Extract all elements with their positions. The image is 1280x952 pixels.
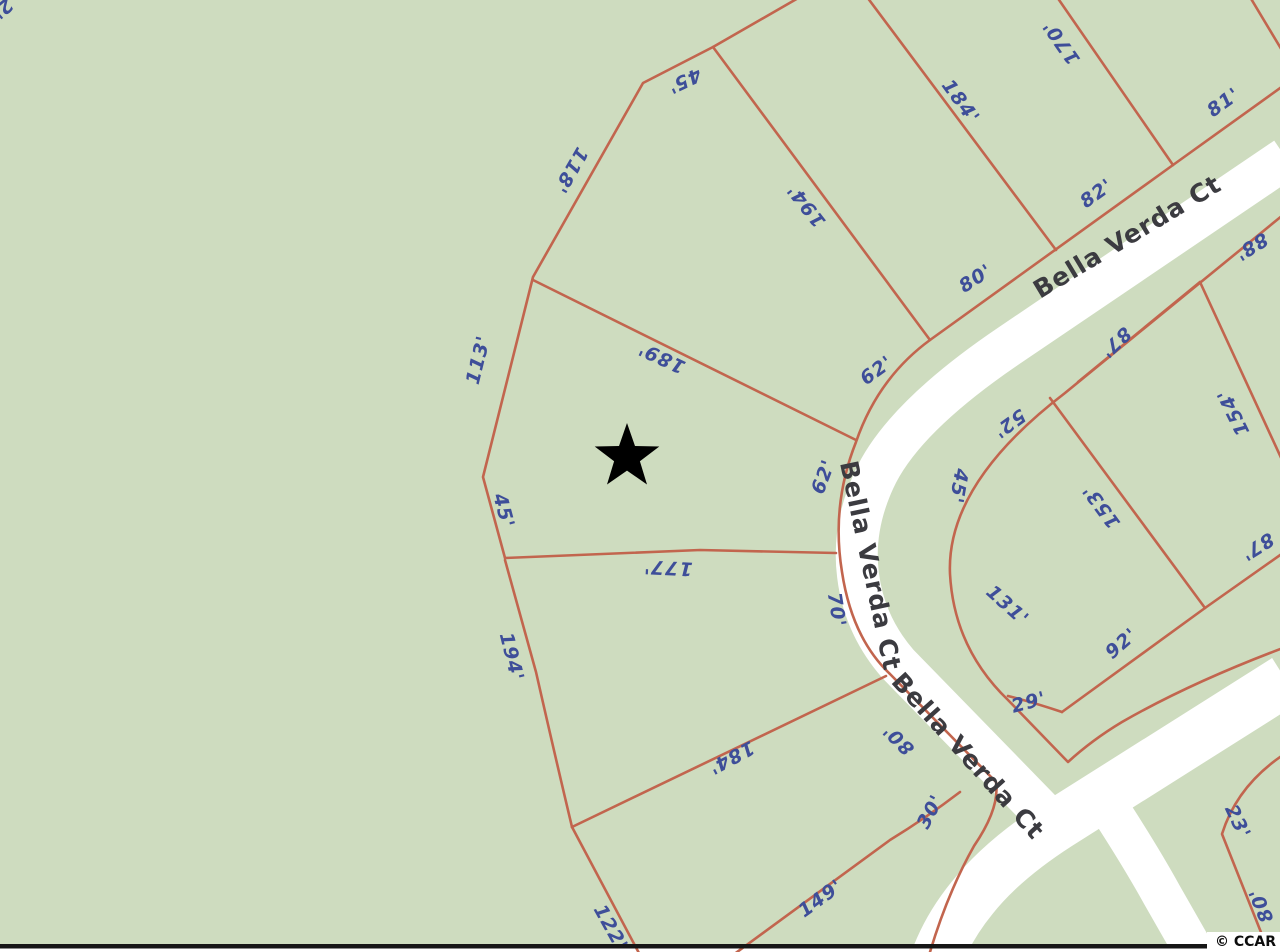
dimension-label: 177': [643, 555, 694, 580]
ccar-watermark-text: © CCAR: [1215, 934, 1276, 950]
ccar-watermark: © CCAR: [1207, 932, 1280, 952]
map-bottom-border: [0, 944, 1280, 949]
plat-map: Bella Verda CtBella Verda CtBella Verda …: [0, 0, 1280, 952]
plat-map-canvas: Bella Verda CtBella Verda CtBella Verda …: [0, 0, 1280, 952]
